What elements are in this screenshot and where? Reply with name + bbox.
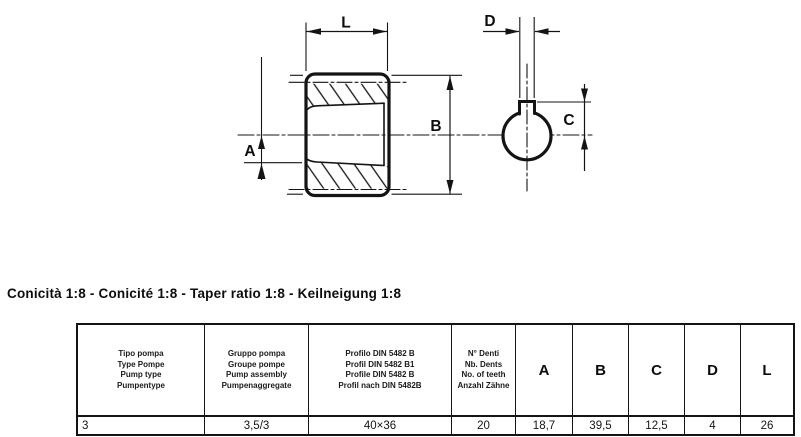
- header-line: Pumpenaggregate: [222, 381, 292, 392]
- value-profile: 40×36: [309, 417, 452, 434]
- arrowhead-icon: [447, 180, 454, 194]
- value-B: 39,5: [573, 417, 629, 434]
- page-title: Conicità 1:8 - Conicité 1:8 - Taper rati…: [7, 286, 401, 301]
- value-D: 4: [685, 417, 741, 434]
- header-line: No. of teeth: [462, 370, 506, 381]
- dim-label-D: D: [484, 13, 495, 30]
- header-line: Tipo pompa: [118, 349, 163, 360]
- col-header-C: C: [629, 325, 685, 417]
- col-header-profile: Profilo DIN 5482 B Profil DIN 5482 B1 Pr…: [309, 325, 452, 417]
- arrowhead-icon: [581, 136, 588, 150]
- header-line: Type Pompe: [118, 360, 165, 371]
- arrowhead-icon: [535, 28, 549, 35]
- arrowhead-icon: [447, 76, 454, 90]
- arrowhead-icon: [307, 28, 322, 35]
- dimension-D: D: [483, 13, 560, 98]
- spec-table: Tipo pompa Type Pompe Pump type Pumpenty…: [76, 323, 795, 436]
- arrowhead-icon: [581, 89, 588, 102]
- dim-label-C: C: [563, 112, 574, 129]
- value-teeth: 20: [452, 417, 516, 434]
- header-line: Gruppo pompa: [228, 349, 285, 360]
- dimension-L: L: [306, 15, 388, 72]
- value-pump-type: 3: [78, 417, 205, 434]
- dim-label-A: A: [244, 143, 255, 160]
- header-line: Anzahl Zähne: [457, 381, 509, 392]
- header-line: Profil nach DIN 5482B: [338, 381, 421, 392]
- dim-label-B: B: [430, 118, 441, 135]
- header-line: N° Denti: [468, 349, 499, 360]
- header-line: Profile DIN 5482 B: [346, 370, 415, 381]
- arrowhead-icon: [373, 28, 387, 35]
- col-header-D: D: [685, 325, 741, 417]
- value-A: 18,7: [516, 417, 573, 434]
- header-line: Profil DIN 5482 B1: [346, 360, 415, 371]
- col-header-pump-type: Tipo pompa Type Pompe Pump type Pumpenty…: [78, 325, 205, 417]
- header-line: Nb. Dents: [465, 360, 502, 371]
- col-header-B: B: [573, 325, 629, 417]
- arrowhead-icon: [258, 164, 266, 180]
- header-line: Pump assembly: [226, 370, 287, 381]
- col-header-L: L: [741, 325, 793, 417]
- col-header-A: A: [516, 325, 573, 417]
- catalog-page: L A B: [0, 0, 801, 437]
- technical-drawing: L A B: [0, 0, 801, 278]
- end-view: [503, 64, 551, 191]
- arrowhead-icon: [506, 28, 520, 35]
- header-line: Pumpentype: [117, 381, 165, 392]
- value-pump-assembly: 3,5/3: [205, 417, 309, 434]
- header-line: Profilo DIN 5482 B: [345, 349, 414, 360]
- col-header-pump-assembly: Gruppo pompa Groupe pompe Pump assembly …: [205, 325, 309, 417]
- dim-label-L: L: [341, 15, 350, 32]
- header-line: Groupe pompe: [228, 360, 285, 371]
- col-header-teeth: N° Denti Nb. Dents No. of teeth Anzahl Z…: [452, 325, 516, 417]
- value-L: 26: [741, 417, 793, 434]
- value-C: 12,5: [629, 417, 685, 434]
- arrowhead-icon: [258, 136, 265, 149]
- header-line: Pump type: [121, 370, 162, 381]
